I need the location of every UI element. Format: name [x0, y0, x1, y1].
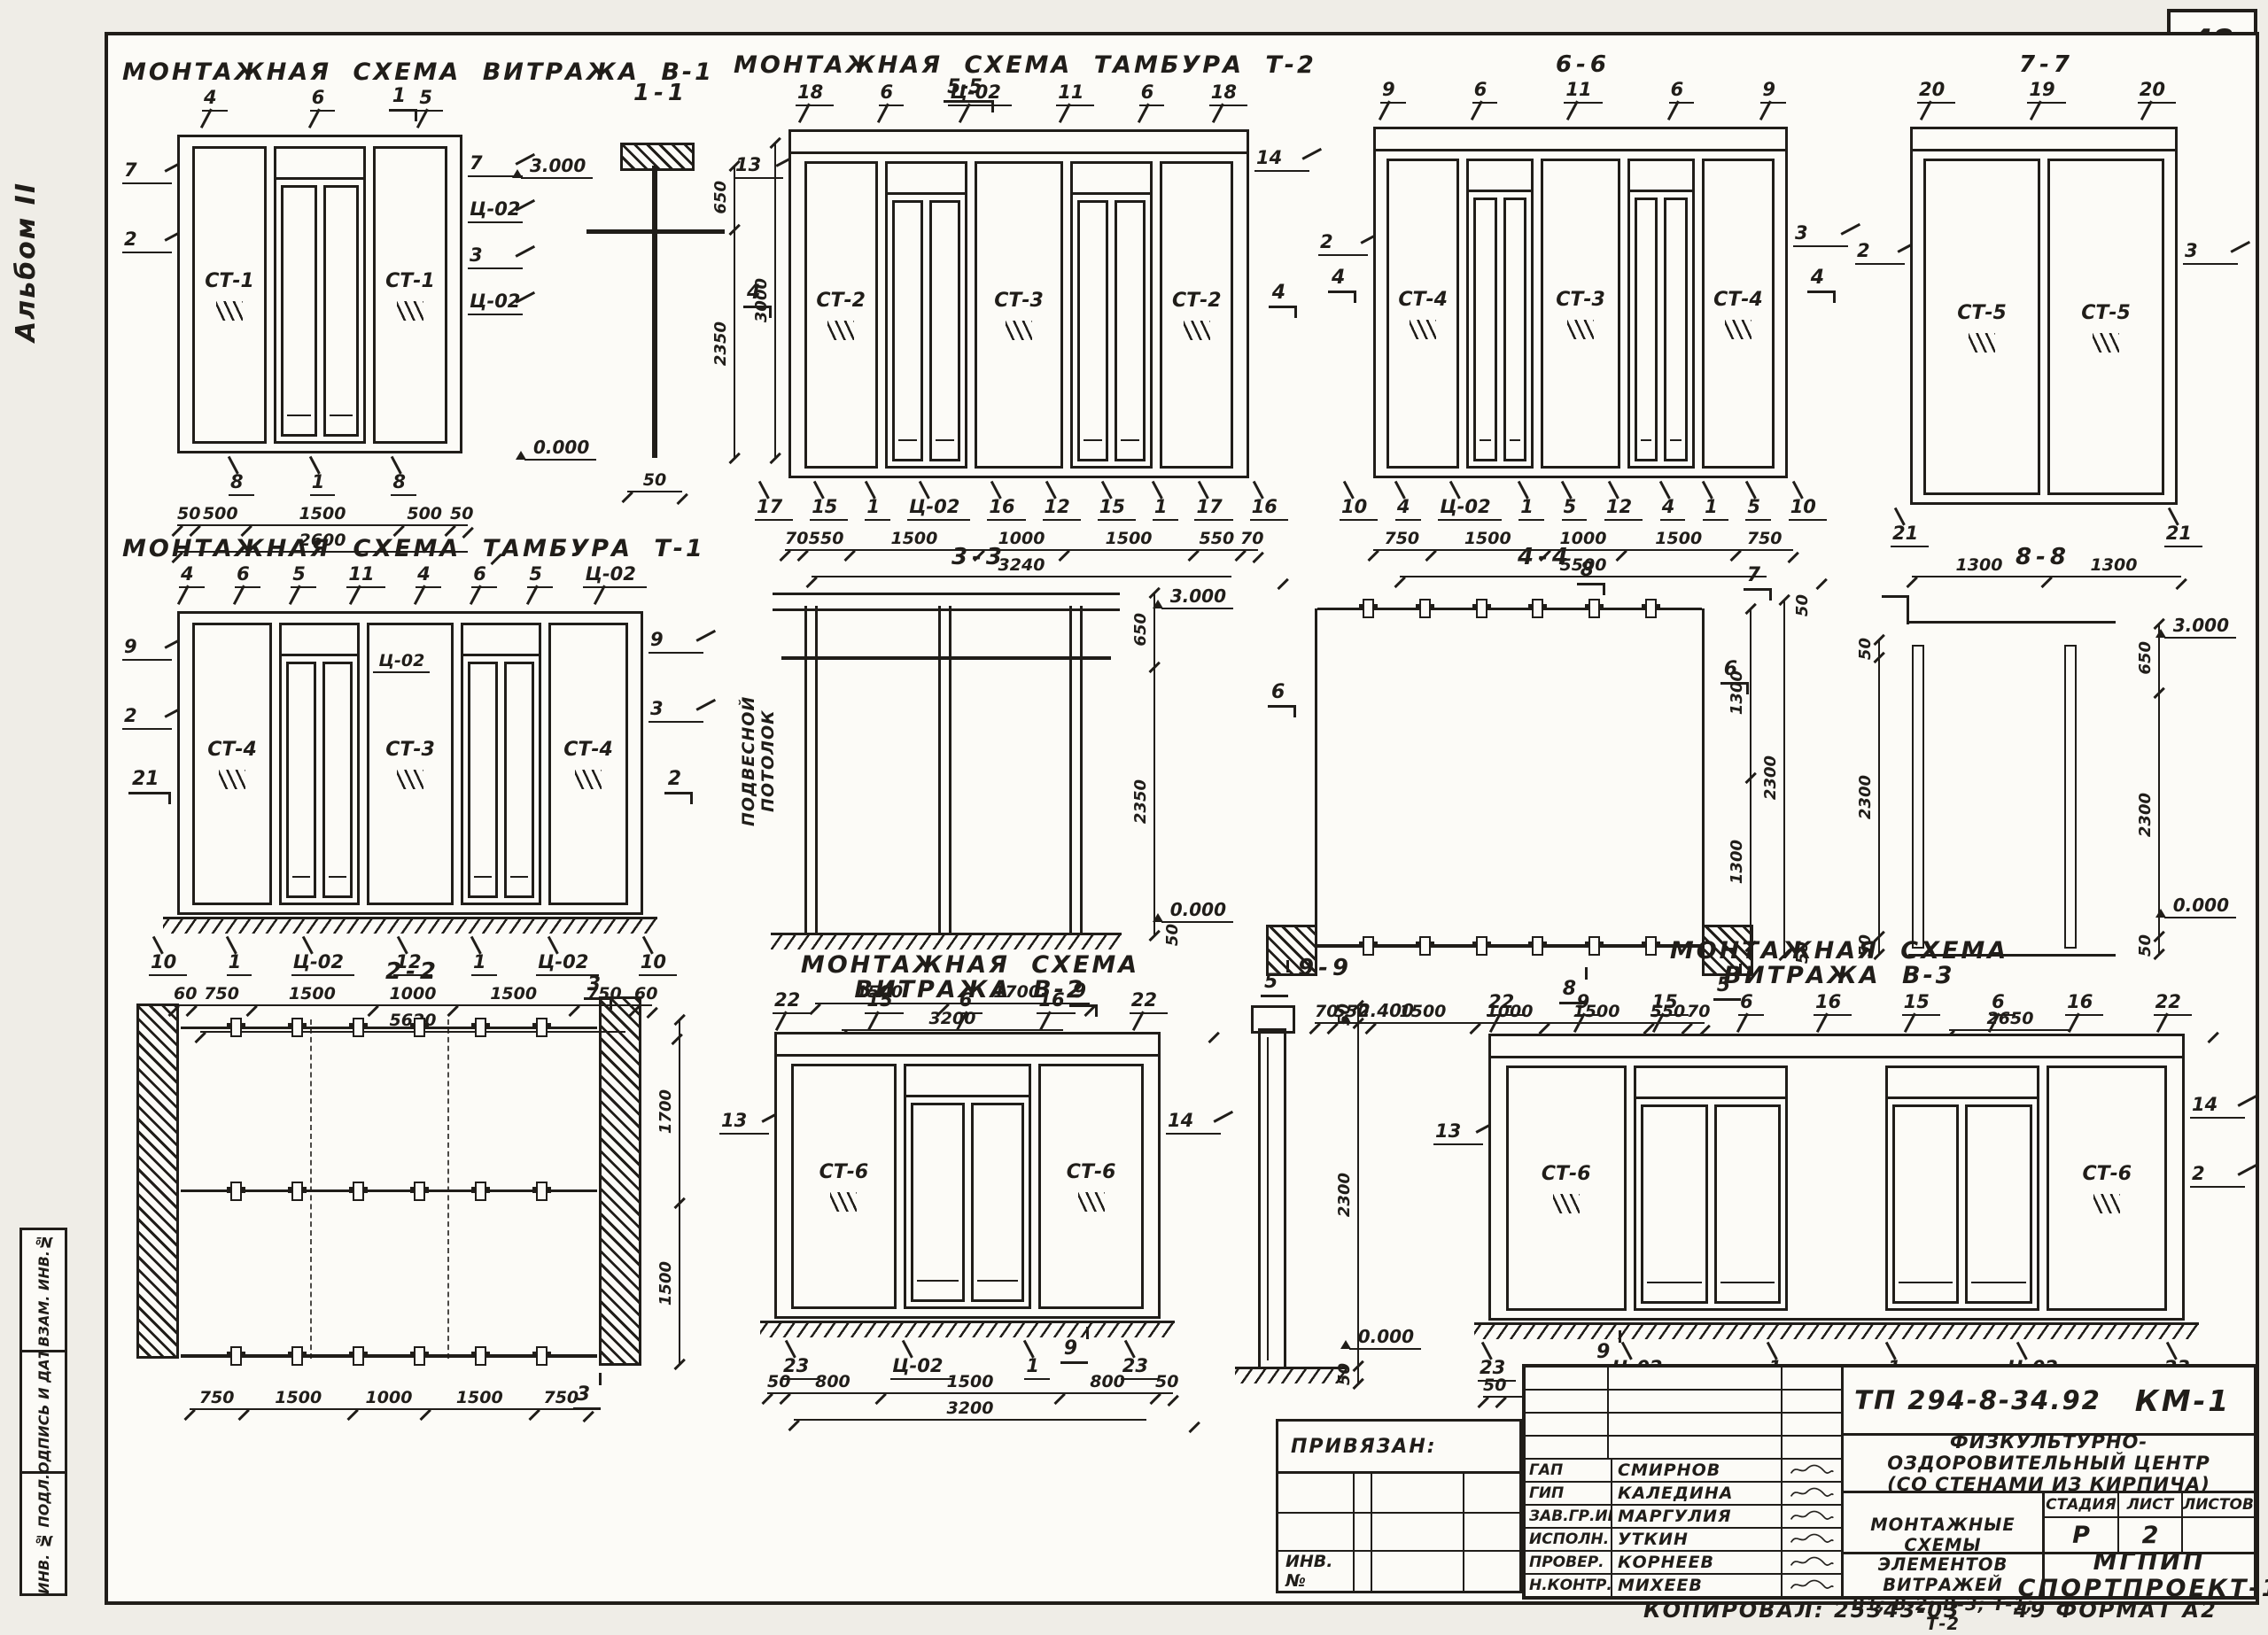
- transom: [1636, 1068, 1786, 1099]
- drawing-title: 8-8: [1846, 546, 2240, 570]
- section-mark: 1: [389, 87, 416, 112]
- door-leaf: [1503, 198, 1527, 461]
- callout: 6: [235, 565, 260, 588]
- connector-icon: [291, 1018, 303, 1037]
- edge-gap: [1237, 161, 1239, 469]
- door-leaf: [281, 185, 316, 437]
- callout: 4: [202, 89, 228, 112]
- dimension: 2300: [1762, 600, 1794, 955]
- callout: 4: [1395, 498, 1421, 521]
- drawing-title: 9-9: [1226, 957, 1425, 980]
- edge-gap: [2171, 1065, 2175, 1312]
- column: [804, 606, 818, 935]
- person-name: УТКИН: [1612, 1529, 1783, 1550]
- edge-gap: [451, 146, 453, 444]
- callout: 6: [879, 83, 905, 106]
- project-name: ФИЗКУЛЬТУРНО-ОЗДОРОВИТЕЛЬНЫЙ ЦЕНТР (СО С…: [1844, 1436, 2254, 1493]
- door-leaf: [1664, 198, 1688, 461]
- callout: 9: [1380, 81, 1406, 104]
- head-band: [777, 1034, 1158, 1057]
- mullion-profile: [652, 166, 657, 458]
- glass-mark-icon: [1410, 320, 1436, 339]
- callout-row-bottom: 17151Ц-0216121511716: [734, 480, 1309, 521]
- callout: 11: [1056, 83, 1094, 106]
- glazing-panel: СТ-5: [1923, 159, 2040, 495]
- dimension-row: 750150010001500750: [190, 1389, 588, 1410]
- callout: 5: [527, 565, 553, 588]
- panel-label: СТ-1: [385, 270, 435, 292]
- project-line2: (СО СТЕНАМИ ИЗ КИРПИЧА): [1887, 1474, 2210, 1495]
- revision-row: [1526, 1437, 1841, 1460]
- signature: [1783, 1460, 1841, 1481]
- section-mark: 2: [664, 770, 692, 794]
- panel-label: СТ-5: [2081, 302, 2131, 324]
- signature: [1783, 1529, 1841, 1550]
- drawing-title: 2-2: [122, 960, 703, 984]
- glazing-bar-inner: [1267, 1037, 1269, 1360]
- mullion-rail: [1317, 601, 1702, 616]
- project-line1: ФИЗКУЛЬТУРНО-ОЗДОРОВИТЕЛЬНЫЙ ЦЕНТР: [1844, 1431, 2254, 1474]
- glass-mark-icon: [1725, 320, 1751, 339]
- stage-value: Р: [2045, 1518, 2119, 1552]
- callout-col-right: 142: [2190, 1034, 2245, 1340]
- organization: МГПИП СПОРТПРОЕКТ-1: [2045, 1554, 2254, 1596]
- transom: [1630, 161, 1692, 192]
- section-mark: 8: [1577, 561, 1604, 585]
- callout: 6: [1738, 993, 1764, 1016]
- elevation-drawing: СТ-6 СТ-6: [1488, 1034, 2185, 1321]
- dimension-row: 50800150080050: [767, 1373, 1173, 1394]
- callout: 5: [1562, 498, 1588, 521]
- door-leaves: [1630, 198, 1692, 466]
- pier-gap: [1795, 1065, 1877, 1312]
- callout-col-right: 3: [1793, 127, 1848, 478]
- panel-label: СТ-4: [1398, 289, 1448, 311]
- callout: Ц-02: [948, 83, 1011, 106]
- callout: 14: [2190, 1096, 2245, 1119]
- callout: 13: [1433, 1122, 1483, 1145]
- callout-row-top: 961169: [1318, 81, 1848, 127]
- title-block: ПРИВЯЗАН: ИНВ. № ГАП СМИРНОВ: [1276, 1364, 2250, 1592]
- callout: 1: [1518, 498, 1544, 521]
- callout: 22: [773, 991, 811, 1014]
- level-mark: 3.000: [2164, 615, 2236, 639]
- panel-label: СТ-3: [385, 739, 435, 761]
- dimension: 50: [450, 505, 468, 526]
- content-line1: МОНТАЖНЫЕ СХЕМЫ: [1844, 1515, 2042, 1555]
- callout: 15: [810, 498, 848, 521]
- callout-row-top: 186Ц-0211618: [734, 83, 1309, 129]
- edge-strip-cell: ИНВ. № ПОДЛ.: [22, 1471, 65, 1593]
- drawing-sheet-frame: МОНТАЖНАЯ СХЕМА ВИТРАЖА В-1 1 465 72 СТ-…: [105, 32, 2259, 1605]
- role-label: ПРОВЕР.: [1526, 1552, 1612, 1573]
- callout: 12: [1043, 498, 1081, 521]
- connector-icon: [353, 1018, 364, 1037]
- dimension: 800: [785, 1373, 881, 1394]
- section-mark: 6: [1268, 683, 1295, 708]
- door-leaf: [892, 200, 923, 461]
- scanned-blueprint-sheet: { "page": { "album_label": "Альбом II", …: [0, 0, 2268, 1626]
- drawing-title: МОНТАЖНАЯ СХЕМА: [1433, 939, 2245, 964]
- connector-icon: [1363, 599, 1374, 618]
- glazing-panel: СТ-4: [548, 623, 628, 905]
- connector-icon: [230, 1182, 242, 1201]
- glass-mark-icon: [1006, 321, 1032, 340]
- transom: [463, 625, 539, 656]
- door-leaves: [1469, 198, 1531, 466]
- titleblock-role-row: ИСПОЛН. УТКИН: [1526, 1529, 1841, 1552]
- album-label: Альбом II: [11, 76, 42, 342]
- callout: 15: [1098, 498, 1136, 521]
- crossbar: [586, 229, 725, 234]
- callout: 9: [1760, 81, 1786, 104]
- dimension: 500: [399, 505, 450, 526]
- signature: [1783, 1506, 1841, 1527]
- door-leaf: [322, 662, 353, 898]
- callout: 16: [1250, 498, 1288, 521]
- door-leaf: [971, 1103, 1024, 1303]
- door-leaf: [911, 1103, 964, 1303]
- panel-label: СТ-1: [205, 270, 254, 292]
- plan-canvas: 8 7 6 6 5 5 8 13001300 2300 50 50: [1315, 608, 1705, 946]
- callout: 19: [2027, 81, 2065, 104]
- stage-table: СТАДИЯ ЛИСТ ЛИСТОВ Р 2: [2045, 1493, 2254, 1552]
- elevation-drawing: СТ-4 СТ-3: [1373, 127, 1788, 478]
- dimension: 1500: [246, 505, 400, 526]
- dimension-total: 3200: [794, 1399, 1146, 1421]
- glazing-panel: СТ-2: [804, 161, 878, 469]
- role-label: ЗАВ.ГР.ИН.: [1526, 1506, 1612, 1527]
- door-leaves: [1073, 200, 1150, 466]
- connector-icon: [536, 1018, 548, 1037]
- vertical-dims: 13001300: [1728, 608, 1760, 946]
- level-mark: 0.000: [1349, 1326, 1421, 1350]
- wall-hatch: [599, 996, 641, 1366]
- level-mark: 3.000: [1161, 585, 1233, 609]
- glass-mark-icon: [1078, 1192, 1105, 1212]
- door-panel: [1634, 1065, 1789, 1312]
- transom: [1469, 161, 1531, 192]
- set-code: КМ-1: [2112, 1383, 2254, 1418]
- level-mark: 2.400: [1349, 1000, 1421, 1024]
- glazing-panel: СТ-1: [192, 146, 267, 444]
- edge-strip-label: ИНВ. № ПОДЛ.: [35, 1474, 52, 1593]
- elevation-drawing: СТ-4 СТ-3: [177, 611, 643, 915]
- elevation-drawing: СТ-2 СТ-3: [788, 129, 1249, 478]
- drawing-title: 6-6: [1318, 53, 1848, 77]
- dimension: 50: [627, 471, 682, 492]
- glass-mark-icon: [1567, 320, 1594, 339]
- connector-icon: [353, 1182, 364, 1201]
- drawing-title-line2: ВИТРАЖА В-3: [1433, 964, 2245, 988]
- section-mark: 21: [128, 770, 170, 794]
- role-label: Н.КОНТР.: [1526, 1575, 1612, 1596]
- mullion-rail: [181, 1019, 597, 1035]
- glazing-panel: СТ-3: [975, 161, 1063, 469]
- section-mark: 4: [1807, 268, 1835, 293]
- signature: [1783, 1552, 1841, 1573]
- door-leaf: [1965, 1104, 2032, 1305]
- scheme-section-6-6: 6-6 961169 2 СТ-4: [1318, 53, 1848, 577]
- dimension-total-row: 3200: [746, 1399, 1194, 1421]
- transom: [888, 164, 965, 195]
- connector-icon: [230, 1346, 242, 1366]
- callout: 2: [2190, 1165, 2245, 1188]
- glazing-panel: СТ-1: [373, 146, 447, 444]
- connector-icon: [475, 1346, 486, 1366]
- edge-gap: [1147, 1064, 1151, 1310]
- glass-mark-icon: [219, 770, 245, 789]
- sheets-label: ЛИСТОВ: [2183, 1493, 2254, 1516]
- callout: 22: [1130, 991, 1168, 1014]
- roles-table: ГАП СМИРНОВ ГИП КАЛЕДИНА ЗАВ.ГР.ИН.: [1526, 1368, 1844, 1596]
- level-mark: 0.000: [2164, 895, 2236, 918]
- edge-strip-label: ВЗАМ. ИНВ.№: [35, 1234, 52, 1347]
- callout: 4: [416, 565, 441, 588]
- vertical-dims: 17001500: [657, 1019, 689, 1364]
- dimension: 1500: [425, 1389, 534, 1410]
- sheet-value: 2: [2119, 1518, 2183, 1552]
- section-mark: 4: [1269, 283, 1296, 308]
- elevation-drawing: СТ-5 СТ-5: [1910, 127, 2178, 505]
- edge-strip-cell: ВЗАМ. ИНВ.№: [22, 1230, 65, 1350]
- callout: 3: [649, 700, 703, 723]
- stage-values: Р 2: [2045, 1518, 2254, 1552]
- titleblock-role-row: ГАП СМИРНОВ: [1526, 1460, 1841, 1483]
- callout: 10: [1340, 498, 1378, 521]
- callout: 11: [1564, 81, 1602, 104]
- panel-label: СТ-3: [994, 290, 1044, 312]
- dimension: 800: [1060, 1373, 1155, 1394]
- section-canvas: ПОДВЕСНОЙ ПОТОЛОК 6502350 50 3.000 0.000: [788, 593, 1107, 971]
- panel-label: СТ-6: [2083, 1163, 2132, 1185]
- sheet-content-title: МОНТАЖНЫЕ СХЕМЫ ЭЛЕМЕНТОВ ВИТРАЖЕЙ В1; В…: [1844, 1554, 2045, 1596]
- scheme-section-2-2: 2-2 3 3 17001500 750150010001500750: [122, 960, 703, 1414]
- callout: 18: [1209, 83, 1247, 106]
- door-panel: [1466, 159, 1534, 469]
- titleblock-role-row: ГИП КАЛЕДИНА: [1526, 1483, 1841, 1506]
- callout-col-left: 13: [1433, 1034, 1483, 1340]
- callout: 1: [865, 498, 890, 521]
- panel-label: СТ-4: [1713, 289, 1763, 311]
- dimension: 2350: [1132, 667, 1164, 935]
- callout: 17: [755, 498, 793, 521]
- wall-hatch: [136, 1003, 179, 1359]
- callout-row-top: 201920: [1855, 81, 2238, 127]
- callout: 1: [1153, 498, 1178, 521]
- glass-mark-icon: [830, 1192, 857, 1212]
- dimension: 1000: [353, 1389, 425, 1410]
- section-mark: 4: [1328, 268, 1355, 293]
- callout: 6: [310, 89, 336, 112]
- ground-hatch: [1474, 1322, 2199, 1339]
- glazing-panel: СТ-3: [1541, 159, 1619, 469]
- person-name: МАРГУЛИЯ: [1612, 1506, 1783, 1527]
- titleblock-role-row: ПРОВЕР. КОРНЕЕВ: [1526, 1552, 1841, 1575]
- callout: 13: [734, 156, 783, 179]
- door-leaves: [906, 1103, 1029, 1307]
- connector-icon: [475, 1182, 486, 1201]
- callout: 2: [122, 230, 172, 253]
- scheme-vitrazh-v1: МОНТАЖНАЯ СХЕМА ВИТРАЖА В-1 1 465 72 СТ-…: [122, 60, 523, 553]
- content-line2: ЭЛЕМЕНТОВ ВИТРАЖЕЙ: [1844, 1555, 2042, 1595]
- door-panel: [461, 623, 541, 905]
- glass-mark-icon: [827, 321, 854, 340]
- panel-label: СТ-6: [1542, 1163, 1591, 1185]
- glazing-bar: [1258, 1028, 1286, 1369]
- glass-mark-icon: [1184, 321, 1210, 340]
- door-leaves: [1888, 1104, 2038, 1309]
- callout: 8: [391, 473, 416, 496]
- revision-row: [1526, 1414, 1841, 1437]
- connector-icon: [353, 1346, 364, 1366]
- callout: 6: [1139, 83, 1165, 106]
- dimension: 1300: [1728, 778, 1760, 946]
- door-leaf: [1473, 198, 1497, 461]
- door-panel: [274, 146, 366, 444]
- glazing-bar: [2064, 645, 2077, 949]
- titleblock-role-row: ЗАВ.ГР.ИН. МАРГУЛИЯ: [1526, 1506, 1841, 1529]
- callout: 9: [649, 631, 703, 654]
- drawing-title: МОНТАЖНАЯ СХЕМА ТАМБУРА Т-2: [734, 53, 1309, 78]
- callout-col-right: 14: [1166, 1032, 1221, 1338]
- callout: Ц-02: [1438, 498, 1501, 521]
- callout: 11: [346, 565, 384, 588]
- revision-row: [1526, 1368, 1841, 1391]
- edge-gap: [798, 161, 801, 469]
- door-leaf: [1077, 200, 1108, 461]
- vertical-dims-left: 50230050: [1857, 639, 1889, 954]
- glass-mark-icon: [397, 770, 423, 789]
- callout: Ц-02: [468, 292, 523, 315]
- glazing-panel: СТ-4: [192, 623, 272, 905]
- connector-icon: [414, 1346, 425, 1366]
- edge-gap: [784, 1064, 788, 1310]
- glazing-bar: [1912, 645, 1924, 949]
- section-mark: 4: [743, 283, 771, 308]
- callout-row-top: 46511465Ц-02: [122, 565, 703, 611]
- door-leaves: [888, 200, 965, 466]
- callout: 21: [1891, 524, 1929, 547]
- callout: 13: [719, 1112, 769, 1135]
- vertical-dim-far: 2300: [1762, 600, 1794, 955]
- callout-row-top: 221561622: [719, 991, 1221, 1032]
- callout: 12: [1604, 498, 1643, 521]
- dimension: 2300: [1857, 657, 1889, 936]
- panel-label: СТ-2: [1172, 290, 1222, 312]
- stamp-right: ТП 294-8-34.92 КМ-1 ФИЗКУЛЬТУРНО-ОЗДОРОВ…: [1844, 1368, 2254, 1596]
- connector-icon: [1363, 936, 1374, 956]
- level-mark: 0.000: [524, 437, 596, 461]
- signature: [1783, 1483, 1841, 1504]
- callout: 1: [1703, 498, 1728, 521]
- callout: 2: [1318, 233, 1368, 256]
- dimension-row: 50500150050050: [177, 505, 468, 526]
- ground-hatch: [163, 917, 657, 934]
- code-row: ТП 294-8-34.92 КМ-1: [1844, 1368, 2254, 1436]
- glass-mark-icon: [2093, 1194, 2120, 1213]
- callout: 20: [1917, 81, 1955, 104]
- door-leaf: [1635, 198, 1658, 461]
- callout: 6: [1990, 993, 2016, 1016]
- door-panel: [904, 1064, 1031, 1310]
- connector-icon: [1588, 599, 1600, 618]
- elevation-drawing: СТ-6 СТ-6: [774, 1032, 1161, 1320]
- ground-hatch: [771, 933, 1122, 949]
- connector-icon: [291, 1346, 303, 1366]
- callout-row-bottom: 104Ц-02151241510: [1318, 480, 1848, 521]
- sheets-value: [2183, 1518, 2254, 1552]
- callout-row-bottom: 818: [122, 455, 523, 496]
- connector-icon: [1419, 936, 1431, 956]
- callout: 6: [471, 565, 497, 588]
- panel-label: СТ-5: [1957, 302, 2007, 324]
- callout: 22: [1487, 993, 1525, 1016]
- transom: [1073, 164, 1150, 195]
- glazing-panel: СТ-4: [1702, 159, 1775, 469]
- callout: 10: [1789, 498, 1827, 521]
- suspended-ceiling-note: ПОДВЕСНОЙ ПОТОЛОК: [739, 663, 778, 858]
- section-canvas: 50230050 650230050 3.000 0.000: [1908, 621, 2116, 957]
- glass-mark-icon: [1969, 333, 1995, 353]
- transom: [276, 149, 363, 180]
- callout: 3: [1793, 224, 1848, 247]
- elevation-drawing: СТ-1 СТ-1: [177, 135, 462, 453]
- door-leaf: [1641, 1104, 1708, 1305]
- drawing-title: МОНТАЖНАЯ СХЕМА: [719, 953, 1221, 978]
- level-mark: 3.000: [521, 155, 593, 179]
- content-line3: В1; В-2; В-3; Т-1; Т-2: [1844, 1595, 2042, 1635]
- callout: 3: [468, 246, 523, 269]
- org-line2: СПОРТПРОЕКТ-1: [2018, 1576, 2268, 1602]
- glazing-panel: СТ-2: [1160, 161, 1233, 469]
- head-band: [791, 132, 1247, 154]
- door-leaves: [282, 662, 357, 903]
- mullion-rail: [181, 1183, 597, 1199]
- level-mark: 0.000: [1161, 899, 1233, 923]
- callout: 1: [310, 473, 336, 496]
- callout: 5: [1745, 498, 1771, 521]
- panel-label: СТ-4: [207, 739, 257, 761]
- dimension: 50: [1155, 1373, 1173, 1394]
- dimension: 50: [1163, 924, 1182, 946]
- callout-row-top: 229156161561622: [1433, 993, 2245, 1034]
- connector-icon: [230, 1018, 242, 1037]
- dimension: 500: [195, 505, 246, 526]
- dimension: 1500: [244, 1389, 353, 1410]
- person-name: СМИРНОВ: [1612, 1460, 1783, 1481]
- dimension: 50: [1793, 594, 1812, 616]
- dimension: 2300: [1336, 1023, 1368, 1366]
- section-mark: 3: [584, 975, 611, 1000]
- callout: 6: [958, 991, 983, 1014]
- head-band: [1376, 129, 1785, 151]
- dimension: 1500: [881, 1373, 1060, 1394]
- drawing-title: МОНТАЖНАЯ СХЕМА ВИТРАЖА В-1: [122, 60, 523, 85]
- callout: 2: [122, 707, 172, 730]
- callout: 20: [2138, 81, 2176, 104]
- axis-line: [447, 1019, 449, 1359]
- callout: 3: [2183, 242, 2238, 265]
- roles-rows: ГАП СМИРНОВ ГИП КАЛЕДИНА ЗАВ.ГР.ИН.: [1526, 1460, 1841, 1596]
- door-leaves: [463, 662, 539, 903]
- titleblock-role-row: Н.КОНТР. МИХЕЕВ: [1526, 1575, 1841, 1596]
- callout: 5: [291, 565, 316, 588]
- panel-label: СТ-2: [816, 290, 866, 312]
- glass-mark-icon: [216, 301, 243, 321]
- callout: 6: [1669, 81, 1695, 104]
- callout-row-top: 465: [122, 89, 523, 135]
